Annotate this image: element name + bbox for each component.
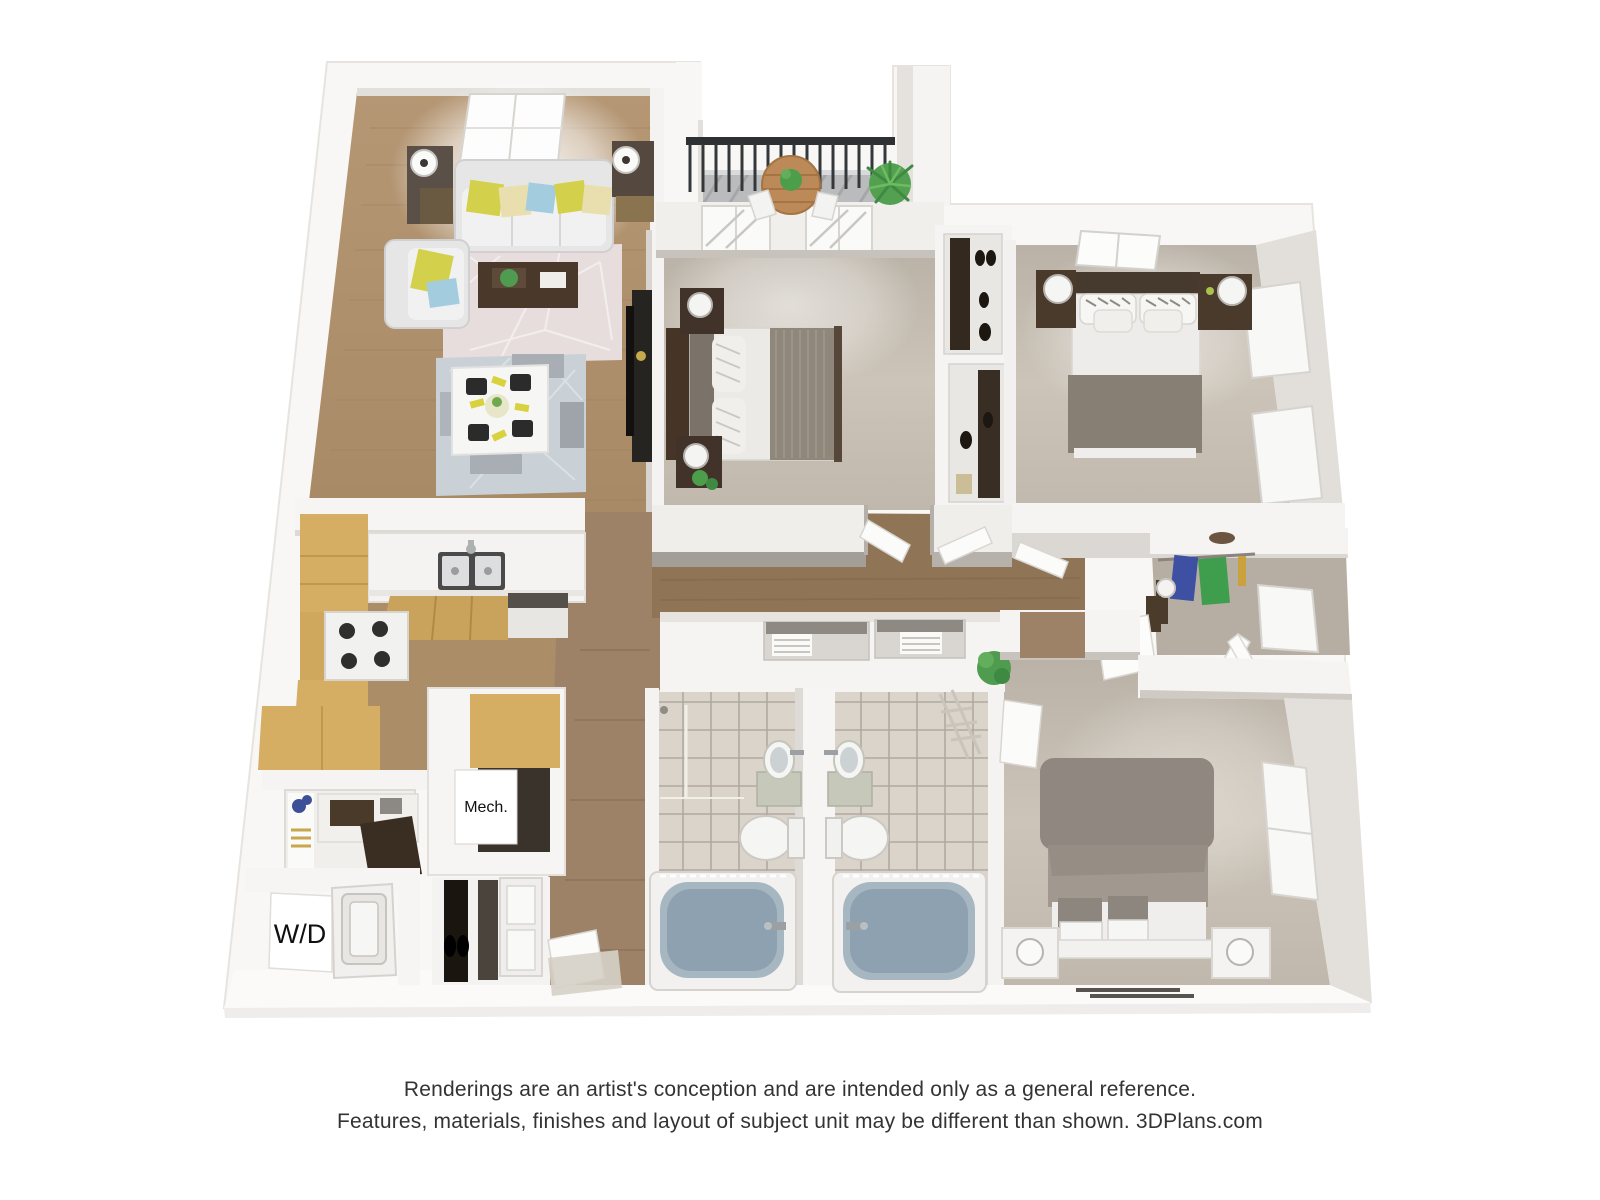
- svg-text:W/D: W/D: [274, 919, 326, 949]
- svg-text:Mech.: Mech.: [464, 799, 508, 816]
